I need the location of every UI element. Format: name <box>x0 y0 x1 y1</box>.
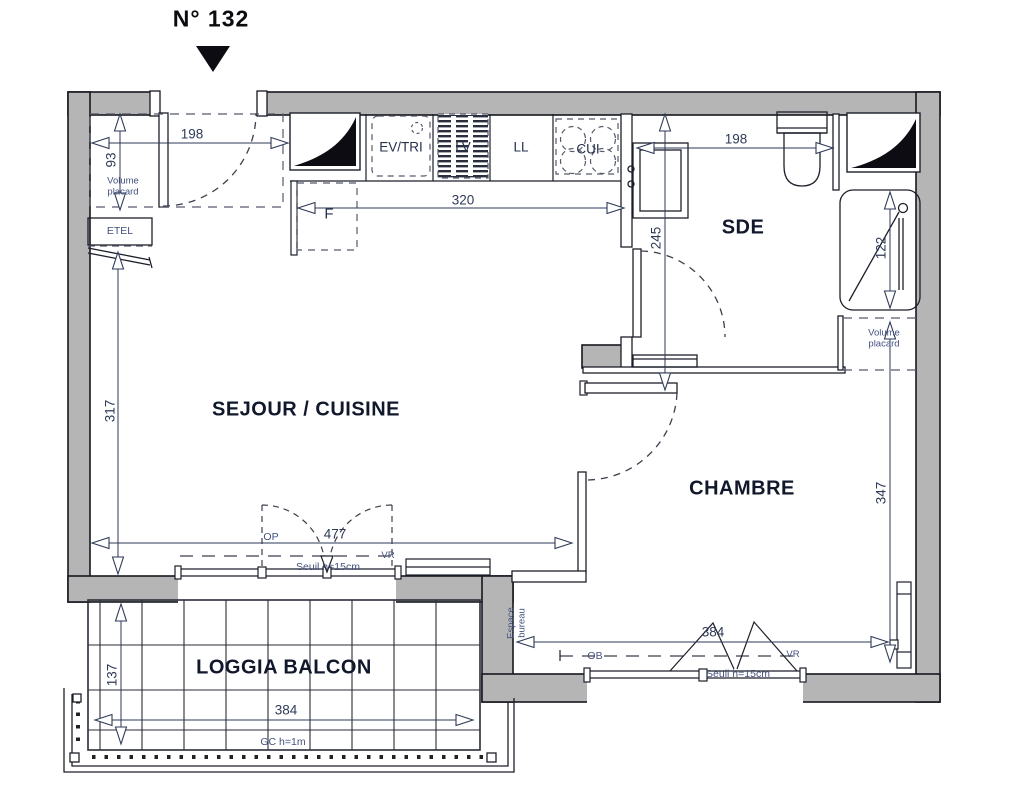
partition-walls <box>512 114 845 582</box>
closet-left-label: Volumeplacard <box>107 177 139 198</box>
plan-title: N° 132 <box>173 6 250 33</box>
door-jamb-right <box>257 91 267 116</box>
dim-bedroom-depth: 347 <box>874 482 889 505</box>
sill-label-bedroom: Seuil h=15cm <box>706 668 770 680</box>
dim-kitchen-run: 320 <box>452 193 475 208</box>
sde-door-jamb-wall <box>621 337 632 370</box>
entrance-door-swing <box>163 113 256 206</box>
door-jamb-left <box>150 91 160 116</box>
window-type-living: OP <box>263 531 278 543</box>
desk-line2: bureau <box>516 608 527 638</box>
shower-head-icon <box>899 204 908 213</box>
closet-left-line2: placard <box>107 186 138 197</box>
dim-entry-width: 198 <box>181 127 204 142</box>
dim-balcony-depth: 137 <box>105 664 120 687</box>
desk-line1: Espace <box>506 607 517 639</box>
fridge-label: F <box>324 206 333 223</box>
closet-right-edge <box>838 316 843 370</box>
sde-south-partition <box>583 367 845 373</box>
shutter-label-bedroom: VR <box>786 650 799 661</box>
sill-label-living: Seuil h=15cm <box>296 561 360 573</box>
closet-left-line1: Volume <box>107 176 139 187</box>
shutter-label-living: VR <box>381 551 394 562</box>
dim-sde-width: 198 <box>725 132 748 147</box>
dim-sde-depth: 245 <box>649 227 664 250</box>
dim-shower-length: 122 <box>874 237 889 260</box>
closet-right-label: Volumeplacard <box>868 329 900 350</box>
washing-machine-label: LL <box>513 140 528 155</box>
closet-right-line1: Volume <box>868 328 900 339</box>
right-wall <box>916 92 940 702</box>
electrical-panel-label: ETEL <box>107 225 133 237</box>
tilt-window-symbol-2 <box>737 622 797 671</box>
room-label-bedroom: CHAMBRE <box>689 478 795 501</box>
entrance-opening <box>157 90 260 117</box>
living-window <box>175 505 401 579</box>
entrance-door-leaf <box>159 113 168 207</box>
washbasin-unit <box>633 143 688 218</box>
radiator-bedroom <box>897 582 911 668</box>
dim-closet-depth: 93 <box>104 152 119 167</box>
bedroom-door-swing <box>586 393 677 480</box>
entrance-arrow-icon <box>196 46 230 72</box>
guardrail-label: GC h=1m <box>260 736 305 748</box>
window-type-bedroom: OB <box>587 650 602 662</box>
room-label-balcony: LOGGIA BALCON <box>196 657 372 680</box>
room-label-sde: SDE <box>722 217 765 240</box>
plan-linework <box>0 0 1035 800</box>
sde-door-leaf <box>633 249 641 337</box>
faucet-icon <box>412 123 423 134</box>
wc-niche-wall <box>833 114 839 190</box>
sink-label: EV/TRI <box>379 140 423 155</box>
dim-living-depth: 317 <box>103 400 118 423</box>
walls <box>68 92 940 702</box>
dim-balcony-width: 384 <box>275 703 298 718</box>
dim-bedroom-width: 384 <box>702 625 725 640</box>
dim-living-width: 477 <box>324 527 347 542</box>
room-label-living: SEJOUR / CUISINE <box>212 399 400 422</box>
fridge-side-panel <box>291 181 297 255</box>
closet-right-line2: placard <box>868 338 899 349</box>
bedroom-window-opening <box>587 672 803 704</box>
living-bedroom-divider <box>578 472 586 572</box>
wc-bowl <box>784 133 820 186</box>
desk-nook-wall <box>512 571 586 582</box>
left-wall <box>68 92 90 602</box>
dishwasher-label: LV <box>455 140 471 155</box>
floor-plan: N° 132 SEJOUR / CUISINE CHAMBRE SDE LOGG… <box>0 0 1035 800</box>
sde-door-swing <box>641 251 725 337</box>
cooktop-label: CUI <box>576 142 599 157</box>
desk-area-label: Espacebureau <box>507 607 528 639</box>
